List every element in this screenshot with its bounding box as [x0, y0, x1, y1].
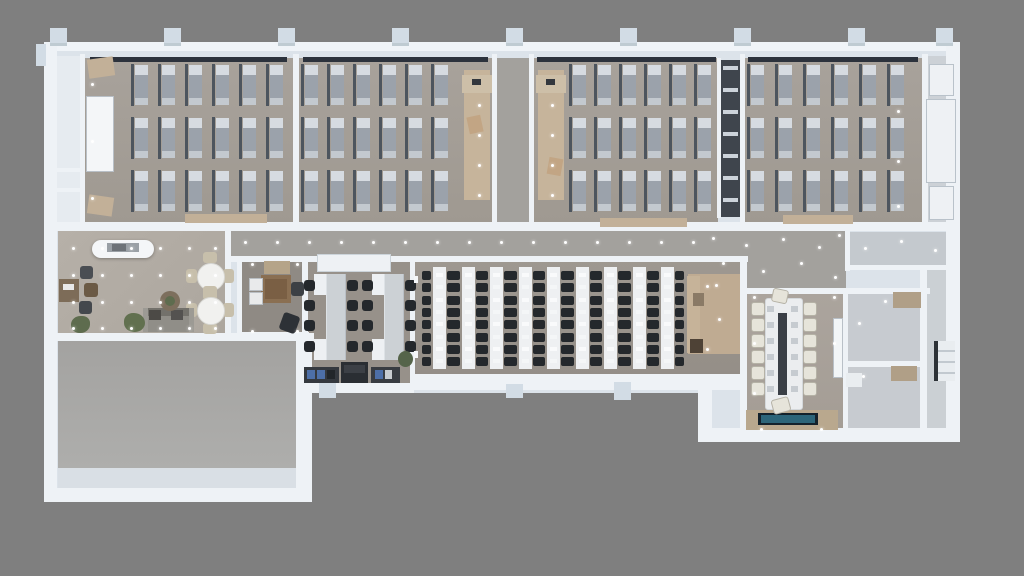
bed-foot [698, 204, 711, 211]
bed-partition [859, 64, 862, 106]
reception-items [112, 244, 126, 251]
office-chair [508, 320, 517, 329]
bed-foot [189, 151, 202, 158]
bed-foot [162, 98, 175, 105]
bed-pillow [779, 118, 792, 128]
office-chair [650, 320, 659, 329]
bed-pillow [189, 118, 202, 128]
floor-plan-3d-render [0, 0, 1024, 576]
bed-foot [331, 204, 344, 211]
bed-pillow [891, 171, 904, 181]
office-chair [650, 296, 659, 305]
bed-blanket [243, 128, 256, 151]
bed-foot [305, 98, 318, 105]
office-chair [650, 357, 659, 366]
bed-blanket [835, 181, 848, 204]
office-chair [508, 345, 517, 354]
bed-partition [569, 117, 572, 159]
office-chair [650, 283, 659, 292]
bed-partition [353, 170, 356, 212]
bed-pillow [135, 65, 148, 75]
conference-chair [751, 350, 765, 364]
bed-blanket [331, 181, 344, 204]
wall [529, 54, 534, 224]
ceiling-light [101, 274, 104, 277]
cafe-chair [203, 252, 217, 263]
copier-top [344, 365, 365, 373]
table-pad [791, 306, 798, 312]
bed-foot [751, 98, 764, 105]
bed-partition [301, 117, 304, 159]
guest-chair [249, 278, 263, 291]
bed-blanket [863, 181, 876, 204]
desk-monitor [636, 285, 643, 289]
bed-pillow [673, 171, 686, 181]
office-chair [593, 296, 602, 305]
bed-pillow [835, 118, 848, 128]
office-chair [362, 300, 373, 311]
bed-partition [353, 117, 356, 159]
bed-pillow [216, 65, 229, 75]
plant [124, 313, 145, 332]
table-pad [767, 338, 774, 344]
ceiling-light [718, 318, 721, 321]
bed-blanket [623, 128, 636, 151]
desk-monitor [465, 298, 472, 302]
bed-partition [644, 170, 647, 212]
printer-tray [327, 370, 335, 379]
desk-monitor [636, 322, 643, 326]
bed-blanket [305, 75, 318, 98]
desk-monitor [493, 273, 500, 277]
ceiling-light [551, 164, 554, 167]
ceiling-light [478, 194, 481, 197]
bottom-left-room-bottom-wall [44, 488, 312, 502]
ceiling-light [753, 342, 756, 345]
bed-foot [648, 151, 661, 158]
bed-foot [573, 98, 586, 105]
bed-blanket [383, 75, 396, 98]
window-strip [303, 57, 488, 62]
bed-pillow [270, 118, 283, 128]
ceiling-light [858, 322, 861, 325]
door-panel [87, 56, 115, 78]
bed-blanket [779, 128, 792, 151]
bed-blanket [891, 181, 904, 204]
desk-monitor [579, 298, 586, 302]
bed-partition [431, 117, 434, 159]
ceiling-light [934, 249, 937, 252]
bed-blanket [162, 128, 175, 151]
bed-foot [751, 204, 764, 211]
bed-foot [598, 204, 611, 211]
bed-partition [212, 64, 215, 106]
bed-foot [807, 151, 820, 158]
bed-partition [831, 64, 834, 106]
bed-pillow [598, 171, 611, 181]
lobby-right-wall [225, 229, 231, 339]
office-chair [304, 280, 315, 291]
bed-pillow [357, 118, 370, 128]
rack-shelves [938, 341, 955, 381]
desk-monitor [636, 359, 643, 363]
bed-partition [431, 170, 434, 212]
bed-pillow [270, 171, 283, 181]
bed-foot [779, 151, 792, 158]
conference-chair [803, 334, 817, 348]
bed-partition [266, 117, 269, 159]
office-chair [622, 308, 631, 317]
bed-partition [887, 170, 890, 212]
table-pad [767, 370, 774, 376]
office-chair [593, 271, 602, 280]
desk-monitor [522, 347, 529, 351]
bed-pillow [698, 171, 711, 181]
office-chair [362, 280, 373, 291]
bed-foot [779, 98, 792, 105]
bed-blanket [648, 128, 661, 151]
wall [717, 58, 721, 218]
bed-pillow [270, 65, 283, 75]
bed-partition [669, 117, 672, 159]
desk-row [462, 267, 475, 369]
bed-blanket [698, 75, 711, 98]
desk-monitor [436, 285, 443, 289]
bed-foot [891, 151, 904, 158]
ceiling-light [884, 300, 887, 303]
office-chair [451, 296, 460, 305]
bed-partition [239, 170, 242, 212]
desk-monitor [493, 310, 500, 314]
bed-foot [189, 98, 202, 105]
bed-pillow [598, 65, 611, 75]
desk-monitor [493, 347, 500, 351]
bed-pillow [331, 118, 344, 128]
bed-pillow [162, 118, 175, 128]
ceiling-light [596, 241, 599, 244]
table-pad [791, 386, 798, 392]
guest-chair [249, 292, 263, 305]
bed-partition [775, 117, 778, 159]
office-chair [536, 271, 545, 280]
bed-foot [835, 151, 848, 158]
office-chair [593, 283, 602, 292]
bed-blanket [135, 128, 148, 151]
bed-pillow [623, 65, 636, 75]
desk-monitor [550, 310, 557, 314]
side-desk-item [63, 284, 74, 290]
bed-partition [619, 64, 622, 106]
desk-monitor [436, 273, 443, 277]
office-chair [451, 357, 460, 366]
desk-monitor [636, 347, 643, 351]
office-chair [508, 271, 517, 280]
bed-blanket [648, 181, 661, 204]
bed-blanket [216, 128, 229, 151]
office-chair [479, 308, 488, 317]
ceiling-light [551, 104, 554, 107]
bench [600, 218, 687, 227]
bed-blanket [216, 75, 229, 98]
office-chair [347, 341, 358, 352]
office-desk-top [265, 279, 287, 299]
locker-slat [723, 132, 738, 136]
bed-foot [162, 151, 175, 158]
bed-pillow [698, 118, 711, 128]
office-chair [304, 341, 315, 352]
bed-partition [239, 117, 242, 159]
office-chair [675, 271, 684, 280]
bed-partition [803, 64, 806, 106]
bed-pillow [409, 118, 422, 128]
bed-pillow [863, 65, 876, 75]
bed-foot [243, 98, 256, 105]
desk-monitor [636, 273, 643, 277]
bed-foot [435, 204, 448, 211]
bed-partition [212, 117, 215, 159]
desk-monitor [465, 273, 472, 277]
bed-blanket [216, 181, 229, 204]
bed-partition [185, 64, 188, 106]
bench-desk [384, 274, 404, 360]
bed-blanket [698, 181, 711, 204]
office-chair [536, 333, 545, 342]
bed-partition [594, 64, 597, 106]
ceiling-light [745, 244, 748, 247]
bed-foot [648, 204, 661, 211]
conference-chair [803, 350, 817, 364]
locker-slat [723, 66, 738, 70]
desk-monitor [546, 79, 555, 85]
desk-monitor [579, 322, 586, 326]
office-chair [479, 271, 488, 280]
balcony-divider [56, 168, 81, 172]
desk-monitor [636, 310, 643, 314]
office-chair [565, 296, 574, 305]
bed-pillow [573, 65, 586, 75]
bed-foot [835, 98, 848, 105]
desk-monitor [636, 335, 643, 339]
table-pad [791, 338, 798, 344]
bed-pillow [623, 118, 636, 128]
ceiling-light [72, 301, 75, 304]
office-chair [422, 296, 431, 305]
conference-chair [771, 287, 790, 304]
desk-monitor [579, 310, 586, 314]
desk-monitor [493, 322, 500, 326]
desk-row [604, 267, 617, 369]
bench-desk [326, 274, 346, 360]
whiteboard [833, 318, 843, 378]
bed-foot [331, 98, 344, 105]
bed-foot [383, 98, 396, 105]
desk-monitor [664, 310, 671, 314]
ceiling-light [564, 241, 567, 244]
office-chair [593, 345, 602, 354]
desk-monitor [436, 298, 443, 302]
bed-partition [569, 64, 572, 106]
desk-monitor [664, 335, 671, 339]
bed-blanket [863, 75, 876, 98]
ceiling-light [782, 238, 785, 241]
bed-partition [803, 117, 806, 159]
dorm-corridor-floor [497, 58, 529, 224]
window-panel [929, 64, 954, 96]
office-chair [508, 283, 517, 292]
bed-foot [270, 204, 283, 211]
table-pad [791, 370, 798, 376]
bed-partition [158, 170, 161, 212]
bed-partition [131, 64, 134, 106]
office-chair [593, 320, 602, 329]
ceiling-light [900, 240, 903, 243]
bed-pillow [673, 65, 686, 75]
desk-monitor [664, 285, 671, 289]
office-chair [405, 300, 416, 311]
bed-foot [598, 98, 611, 105]
desk-monitor [522, 335, 529, 339]
desk-monitor [522, 285, 529, 289]
desk-monitor [607, 273, 614, 277]
bed-pillow [751, 118, 764, 128]
bed-blanket [357, 128, 370, 151]
bed-blanket [835, 128, 848, 151]
column-tab [620, 28, 637, 46]
bed-pillow [779, 65, 792, 75]
desk-monitor [607, 298, 614, 302]
office-chair [347, 300, 358, 311]
ceiling-light [468, 241, 471, 244]
bed-blanket [357, 75, 370, 98]
bed-foot [573, 151, 586, 158]
bed-blanket [751, 181, 764, 204]
ceiling-light [628, 241, 631, 244]
bed-foot [751, 151, 764, 158]
bed-foot [357, 151, 370, 158]
bed-pillow [573, 171, 586, 181]
desk-monitor [579, 273, 586, 277]
ceiling-light [818, 246, 821, 249]
desk-monitor [522, 322, 529, 326]
office-chair [347, 320, 358, 331]
bed-blanket [383, 181, 396, 204]
desk-monitor [664, 359, 671, 363]
ceiling-light [753, 296, 756, 299]
bed-blanket [135, 181, 148, 204]
bed-foot [135, 151, 148, 158]
ceiling-light [188, 301, 191, 304]
desk-monitor [579, 347, 586, 351]
bed-partition [158, 117, 161, 159]
closet-panel [891, 366, 917, 381]
desk-row [519, 267, 532, 369]
bed-pillow [409, 171, 422, 181]
bed-partition [405, 170, 408, 212]
desk-monitor [664, 347, 671, 351]
bed-foot [673, 151, 686, 158]
bed-foot [779, 204, 792, 211]
bed-foot [243, 151, 256, 158]
bed-pillow [835, 171, 848, 181]
bed-foot [135, 98, 148, 105]
desk-monitor [465, 335, 472, 339]
bed-pillow [305, 65, 318, 75]
ceiling-light [838, 234, 841, 237]
bed-pillow [698, 65, 711, 75]
column-tab [36, 44, 46, 66]
bed-partition [644, 117, 647, 159]
bed-partition [747, 170, 750, 212]
bed-pillow [383, 171, 396, 181]
bed-foot [623, 151, 636, 158]
bed-blanket [623, 181, 636, 204]
ceiling-light [159, 274, 162, 277]
wall-fixture [414, 351, 418, 358]
bed-pillow [807, 118, 820, 128]
ceiling-light [692, 241, 695, 244]
bed-pillow [305, 171, 318, 181]
bed-pillow [357, 65, 370, 75]
conference-chair [803, 302, 817, 316]
table-pad [767, 354, 774, 360]
bench [783, 215, 853, 224]
desk-monitor [465, 322, 472, 326]
ceiling-light [130, 274, 133, 277]
bed-blanket [835, 75, 848, 98]
desk-monitor [493, 298, 500, 302]
bed-partition [131, 170, 134, 212]
bed-foot [435, 98, 448, 105]
office-chair [565, 357, 574, 366]
bed-partition [353, 64, 356, 106]
bed-foot [648, 98, 661, 105]
office-chair [650, 308, 659, 317]
ceiling-light [188, 327, 191, 330]
office-chair [593, 357, 602, 366]
office-chair [675, 308, 684, 317]
office-chair [536, 357, 545, 366]
office-chair [508, 308, 517, 317]
wall [920, 267, 927, 439]
table-pad [791, 354, 798, 360]
ceiling-light [308, 241, 311, 244]
conference-chair [803, 382, 817, 396]
bed-partition [747, 117, 750, 159]
bed-pillow [331, 171, 344, 181]
bed-blanket [573, 75, 586, 98]
plant [398, 351, 413, 367]
bed-partition [405, 64, 408, 106]
bed-pillow [189, 65, 202, 75]
bed-pillow [673, 118, 686, 128]
bed-blanket [409, 75, 422, 98]
column-tab [50, 28, 67, 46]
pantry-item [693, 293, 704, 306]
bed-partition [694, 170, 697, 212]
whiteboard [86, 96, 114, 172]
bottom-left-room-floor [58, 338, 298, 470]
desk-monitor [465, 347, 472, 351]
bed-pillow [135, 118, 148, 128]
locker-slat [723, 198, 738, 202]
ceiling-light [188, 274, 191, 277]
desk-monitor [664, 322, 671, 326]
conference-chair [751, 334, 765, 348]
bed-foot [357, 98, 370, 105]
office-chair [593, 308, 602, 317]
desk-monitor [493, 285, 500, 289]
bed-partition [239, 64, 242, 106]
